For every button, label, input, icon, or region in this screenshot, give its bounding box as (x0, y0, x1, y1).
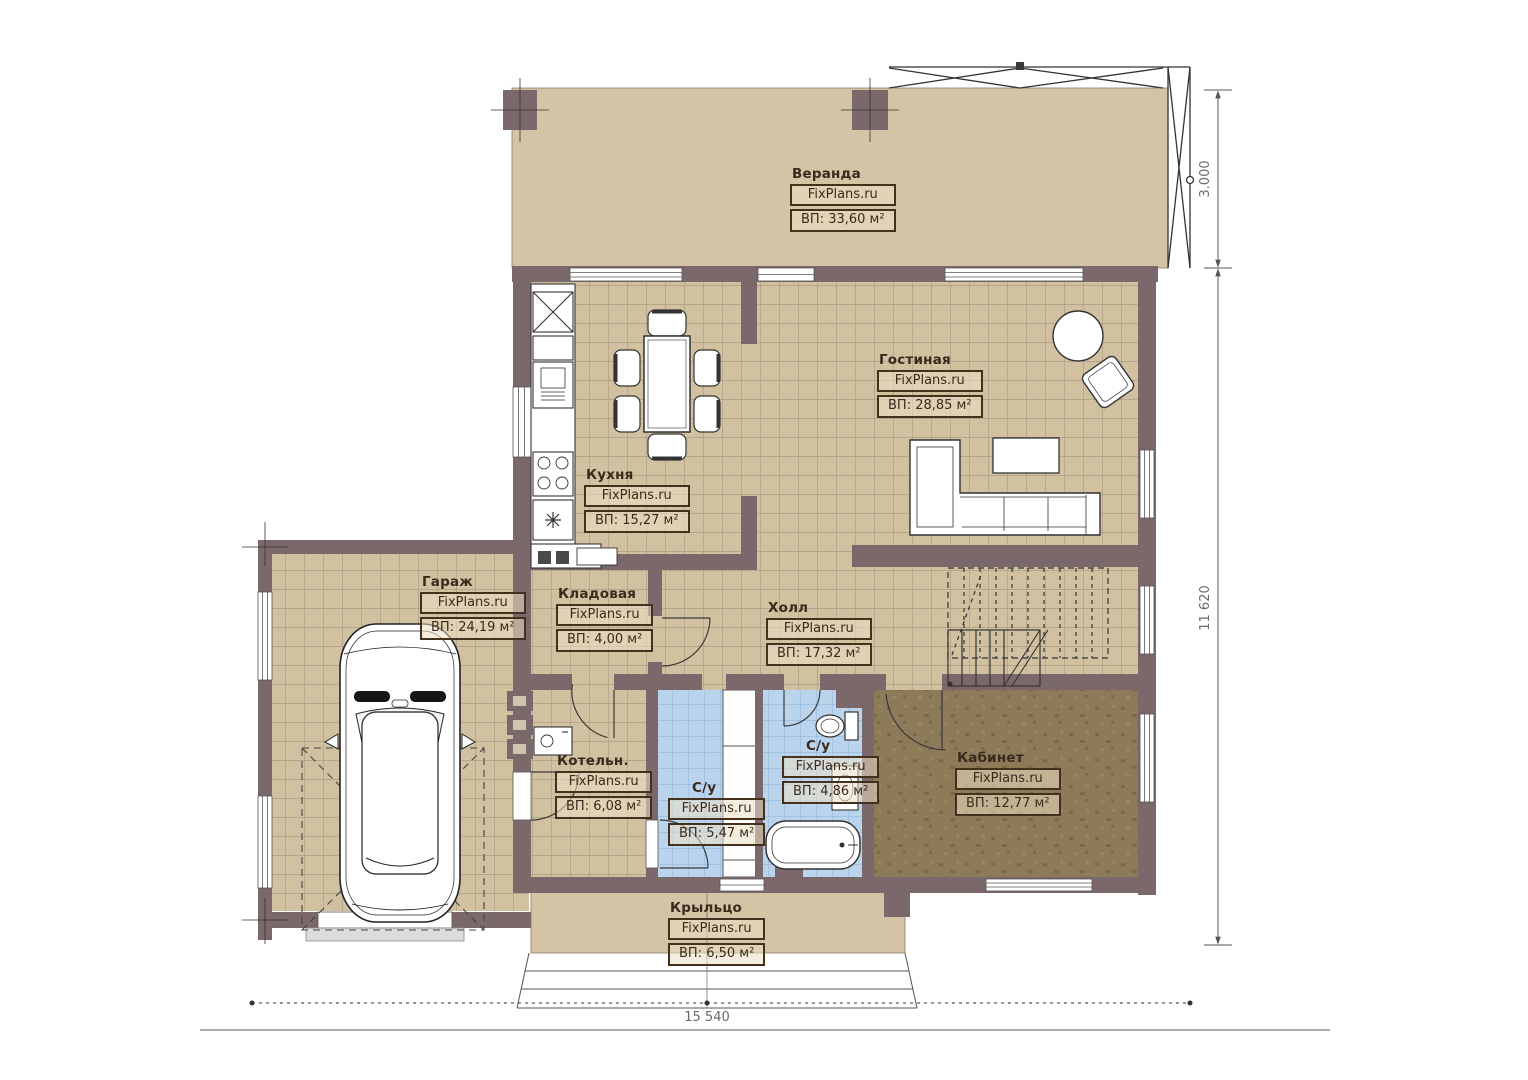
room-name: Кладовая (558, 586, 653, 602)
dimension-veranda-depth-text: 3.000 (1198, 160, 1213, 197)
window (945, 268, 1083, 281)
floor-plan-canvas: 3.000 11 620 15 540 Веранда FixPlans.ru … (0, 0, 1528, 1080)
dining-table (644, 336, 690, 432)
car (325, 624, 475, 922)
boiler-door-opening (513, 772, 531, 820)
chair (694, 350, 720, 386)
room-label-porch: Крыльцо FixPlans.ru ВП: 6,50 м² (668, 900, 765, 966)
room-area: ВП: 4,86 м² (782, 781, 879, 803)
room-area: ВП: 4,00 м² (556, 629, 653, 651)
chair (614, 350, 640, 386)
room-label-kitchen: Кухня FixPlans.ru ВП: 15,27 м² (584, 467, 690, 533)
room-brand: FixPlans.ru (668, 918, 765, 940)
room-name: Веранда (792, 166, 896, 182)
room-name: С/у (806, 738, 879, 754)
room-brand: FixPlans.ru (668, 798, 765, 820)
room-label-garage: Гараж FixPlans.ru ВП: 24,19 м² (420, 574, 526, 640)
dimension-bottom (200, 1001, 1330, 1031)
dimension-house-width-text: 15 540 (684, 1010, 730, 1025)
window (258, 592, 272, 680)
chair (694, 396, 720, 432)
room-name: Холл (768, 600, 872, 616)
room-name: С/у (692, 780, 765, 796)
window (1140, 586, 1154, 654)
room-label-veranda: Веранда FixPlans.ru ВП: 33,60 м² (790, 166, 896, 232)
room-brand: FixPlans.ru (766, 618, 872, 640)
room-area: ВП: 17,32 м² (766, 643, 872, 665)
room-area: ВП: 12,77 м² (955, 793, 1061, 815)
room-name: Котельн. (557, 753, 652, 769)
room-brand: FixPlans.ru (555, 771, 652, 793)
window (258, 796, 272, 888)
chair (614, 396, 640, 432)
vent-shafts (507, 691, 533, 759)
room-label-office: Кабинет FixPlans.ru ВП: 12,77 м² (955, 750, 1061, 816)
window (513, 387, 531, 457)
window (986, 879, 1092, 891)
room-name: Гараж (422, 574, 526, 590)
room-label-boiler: Котельн. FixPlans.ru ВП: 6,08 м² (555, 753, 652, 819)
window (570, 268, 682, 281)
bathtub (766, 821, 860, 869)
room-area: ВП: 15,27 м² (584, 510, 690, 532)
room-area: ВП: 24,19 м² (420, 617, 526, 639)
toilet (816, 712, 858, 740)
room-area: ВП: 28,85 м² (877, 395, 983, 417)
room-area: ВП: 6,50 м² (668, 943, 765, 965)
room-brand: FixPlans.ru (955, 768, 1061, 790)
room-label-hall: Холл FixPlans.ru ВП: 17,32 м² (766, 600, 872, 666)
room-area: ВП: 33,60 м² (790, 209, 896, 231)
chair (648, 434, 686, 460)
coffee-table (993, 438, 1059, 473)
chair (648, 310, 686, 336)
room-brand: FixPlans.ru (584, 485, 690, 507)
stove (533, 452, 573, 496)
room-brand: FixPlans.ru (420, 592, 526, 614)
room-label-storage: Кладовая FixPlans.ru ВП: 4,00 м² (556, 586, 653, 652)
window (1140, 714, 1154, 802)
room-name: Кухня (586, 467, 690, 483)
room-name: Крыльцо (670, 900, 765, 916)
room-label-wc1: С/у FixPlans.ru ВП: 5,47 м² (668, 780, 765, 846)
washing-machine (534, 727, 572, 755)
room-name: Гостиная (879, 352, 983, 368)
room-label-wc2: С/у FixPlans.ru ВП: 4,86 м² (782, 738, 879, 804)
dimension-house-depth-text: 11 620 (1198, 585, 1213, 631)
room-area: ВП: 6,08 м² (555, 796, 652, 818)
room-brand: FixPlans.ru (790, 184, 896, 206)
room-label-livingroom: Гостиная FixPlans.ru ВП: 28,85 м² (877, 352, 983, 418)
round-table (1053, 311, 1103, 361)
window (1140, 450, 1154, 518)
room-brand: FixPlans.ru (877, 370, 983, 392)
entry-door-opening (720, 879, 764, 891)
room-name: Кабинет (957, 750, 1061, 766)
room-area: ВП: 5,47 м² (668, 823, 765, 845)
wc1-door-opening (646, 820, 658, 868)
veranda-door (758, 268, 814, 281)
room-brand: FixPlans.ru (556, 604, 653, 626)
room-brand: FixPlans.ru (782, 756, 879, 778)
